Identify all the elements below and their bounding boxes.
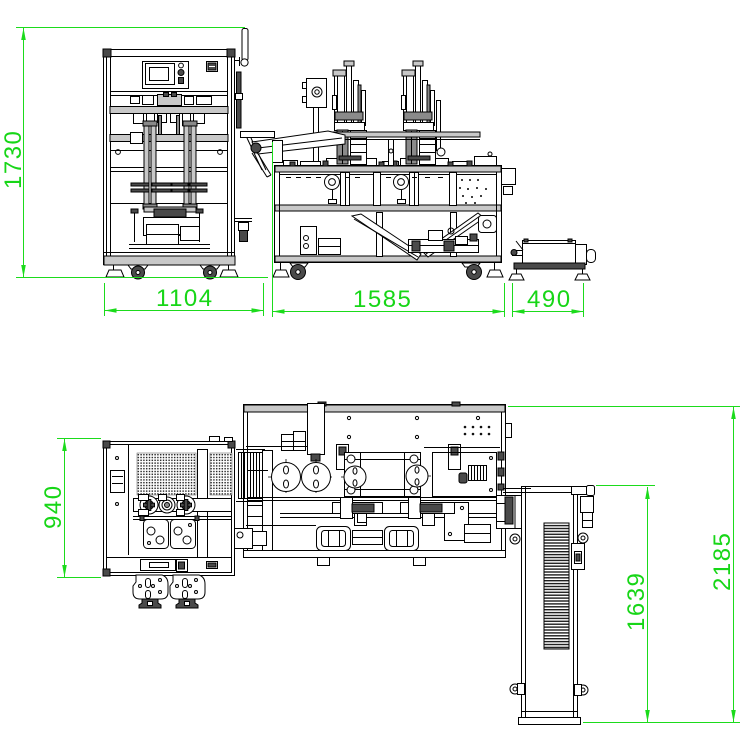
svg-text:1730: 1730 <box>0 130 27 189</box>
svg-text:1639: 1639 <box>623 572 650 631</box>
svg-text:1585: 1585 <box>353 286 412 313</box>
svg-text:490: 490 <box>527 286 572 313</box>
svg-text:940: 940 <box>40 484 67 529</box>
svg-text:1104: 1104 <box>156 285 214 312</box>
svg-text:2185: 2185 <box>709 532 736 591</box>
